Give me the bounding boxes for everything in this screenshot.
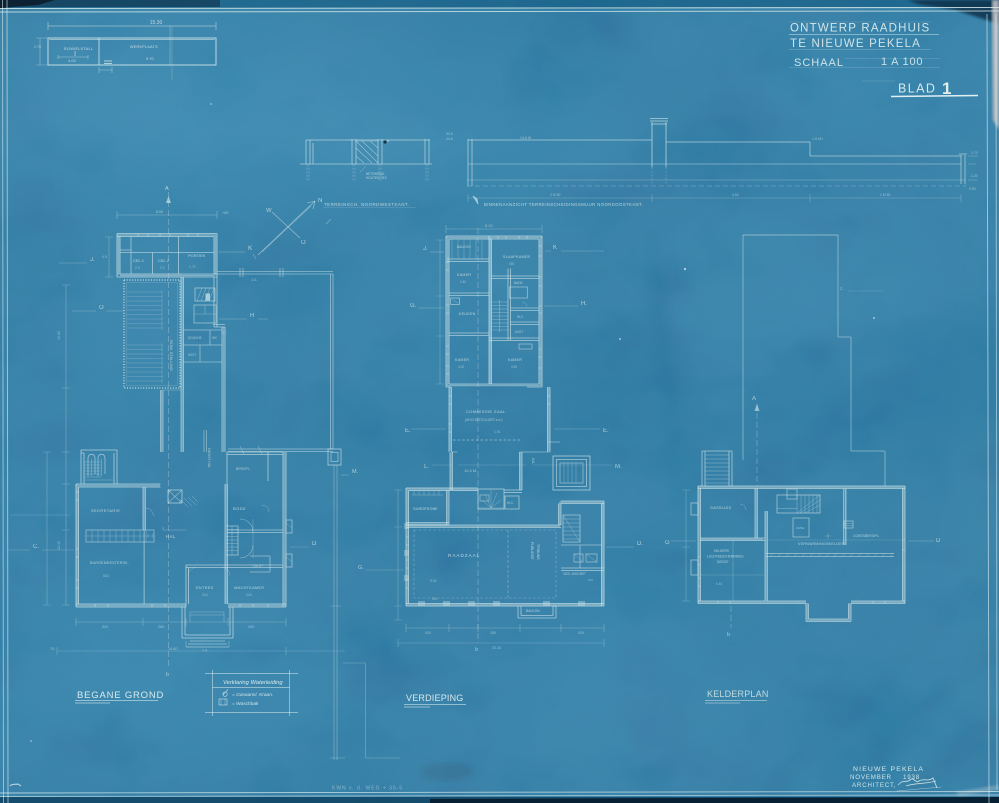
svg-text:14.6 M: 14.6 M: [520, 136, 531, 140]
svg-text:H.: H.: [581, 301, 587, 307]
svg-text:Verklaring Waterleiding: Verklaring Waterleiding: [223, 680, 283, 686]
svg-text:VERWARMINGSKELDER: VERWARMINGSKELDER: [798, 542, 845, 546]
svg-text:SLAAPKAMER: SLAAPKAMER: [503, 255, 530, 259]
svg-text:HAL: HAL: [531, 458, 535, 464]
svg-text:b: b: [166, 672, 169, 678]
svg-text:2.70: 2.70: [34, 45, 41, 49]
svg-text:CEL 2: CEL 2: [158, 258, 170, 263]
svg-text:KELDERS: KELDERS: [714, 549, 729, 553]
svg-text:70-: 70-: [50, 647, 56, 651]
svg-text:W.C.: W.C.: [517, 315, 524, 319]
svg-text:+86: +86: [222, 211, 228, 215]
svg-text:COMMISSIE ZAAL: COMMISSIE ZAAL: [466, 409, 506, 414]
svg-text:GED. ARCHIEF: GED. ARCHIEF: [563, 572, 586, 576]
svg-text:2 M 50: 2 M 50: [880, 193, 890, 197]
svg-text:A: A: [165, 186, 169, 192]
svg-text:2.0: 2.0: [135, 266, 140, 270]
svg-text:J.: J.: [90, 257, 95, 263]
svg-text:280: 280: [158, 625, 164, 629]
svg-text:RAADZAAL: RAADZAAL: [448, 553, 480, 558]
svg-text:NOVEMBER: NOVEMBER: [850, 774, 892, 781]
svg-text:KAMER: KAMER: [508, 358, 522, 362]
svg-text:9.70: 9.70: [146, 56, 155, 61]
svg-text:10.80: 10.80: [57, 331, 61, 340]
svg-text:BEGANE GROND: BEGANE GROND: [77, 690, 164, 701]
svg-text:20.16: 20.16: [492, 646, 501, 650]
svg-text:KAST: KAST: [188, 353, 196, 357]
svg-text:4.02: 4.02: [458, 365, 464, 369]
svg-text:15.30: 15.30: [150, 20, 163, 26]
svg-text:D: D: [312, 541, 317, 547]
svg-text:PORTIEK: PORTIEK: [188, 253, 206, 258]
svg-text:KAMER: KAMER: [457, 273, 471, 277]
svg-text:27-: 27-: [222, 331, 228, 335]
svg-text:BADK.: BADK.: [514, 281, 524, 285]
svg-text:10.4 M.: 10.4 M.: [464, 468, 477, 473]
svg-text:504: 504: [102, 625, 108, 629]
svg-text:KWN v. d. WEG + 35-5: KWN v. d. WEG + 35-5: [332, 786, 403, 792]
svg-text:1.20: 1.20: [971, 174, 978, 178]
svg-text:BURGEMEESTERSK.: BURGEMEESTERSK.: [90, 561, 129, 565]
svg-text:BERGPL.: BERGPL.: [236, 467, 251, 471]
svg-text:PUBLIEKE: PUBLIEKE: [530, 542, 534, 560]
svg-text:DIENST: DIENST: [717, 560, 729, 564]
svg-text:b: b: [727, 632, 730, 638]
svg-text:WACHTKAMER: WACHTKAMER: [234, 586, 264, 590]
svg-text:BLAD: BLAD: [898, 82, 936, 96]
svg-text:8.00: 8.00: [485, 223, 494, 228]
svg-text:240: 240: [588, 578, 593, 582]
svg-text:DIENST HAL: DIENST HAL: [207, 448, 211, 468]
svg-text:2.9-: 2.9-: [202, 649, 209, 653]
svg-text:ENTREE: ENTREE: [196, 586, 214, 590]
svg-text:ONTWERP RAADHUIS: ONTWERP RAADHUIS: [790, 23, 930, 35]
svg-text:8.00: 8.00: [156, 210, 163, 214]
svg-text:9.04: 9.04: [430, 579, 437, 583]
svg-text:5.46: 5.46: [716, 582, 722, 586]
svg-text:= Waschbak: = Waschbak: [232, 701, 259, 707]
svg-text:HOUTEN HEK: HOUTEN HEK: [366, 176, 388, 180]
svg-text:2 M 50: 2 M 50: [550, 193, 560, 197]
svg-text:TERREINSCH. NOORDWESTKANT.: TERREINSCH. NOORDWESTKANT.: [324, 202, 409, 207]
svg-text:1.71: 1.71: [189, 265, 196, 269]
svg-text:VERDIEPING: VERDIEPING: [406, 693, 464, 703]
svg-text:1 A 100: 1 A 100: [881, 56, 923, 68]
svg-text:HAL: HAL: [166, 534, 176, 539]
svg-text:DOUCHE: DOUCHE: [188, 336, 202, 340]
svg-text:K: K: [553, 245, 557, 251]
svg-text:G: G: [665, 540, 670, 546]
svg-text:214: 214: [202, 593, 208, 597]
svg-text:L.: L.: [424, 464, 429, 470]
svg-text:H: H: [250, 313, 254, 319]
svg-text:1.91: 1.91: [494, 430, 501, 434]
svg-text:D: D: [936, 538, 941, 544]
svg-text:1938: 1938: [903, 774, 920, 781]
svg-text:G.: G.: [358, 565, 364, 571]
svg-text:WC: WC: [212, 336, 218, 340]
svg-text:502: 502: [103, 574, 109, 578]
svg-text:c.: c.: [840, 286, 844, 292]
svg-text:CEL 1: CEL 1: [133, 258, 145, 263]
svg-text:KAMER: KAMER: [455, 358, 469, 362]
svg-text:KELDERPLAN: KELDERPLAN: [707, 689, 769, 699]
svg-text:= Gasaansl. Kraan.: = Gasaansl. Kraan.: [232, 692, 273, 698]
svg-text:SECRETARIE: SECRETARIE: [91, 508, 120, 513]
svg-text:495: 495: [248, 625, 254, 629]
svg-text:G.: G.: [410, 303, 417, 309]
svg-text:0.50: 0.50: [969, 187, 976, 191]
svg-text:W.C.: W.C.: [507, 501, 514, 505]
svg-text:TE NIEUWE PEKELA: TE NIEUWE PEKELA: [790, 38, 921, 50]
svg-text:TRIBUNE: TRIBUNE: [536, 544, 540, 560]
svg-text:4.5: 4.5: [102, 255, 107, 259]
svg-text:M.: M.: [352, 469, 359, 475]
svg-text:34.6: 34.6: [446, 132, 453, 136]
svg-text:355: 355: [490, 631, 496, 635]
svg-text:BALKON: BALKON: [457, 245, 471, 249]
svg-text:GASSLUIS: GASSLUIS: [710, 506, 732, 510]
svg-text:b: b: [475, 647, 478, 653]
svg-text:340: 340: [509, 262, 515, 266]
svg-text:C.: C.: [33, 544, 39, 550]
svg-text:KEUKEN: KEUKEN: [459, 312, 476, 316]
svg-text:434: 434: [425, 631, 431, 635]
svg-text:M.: M.: [615, 464, 622, 470]
svg-text:BODE: BODE: [233, 506, 246, 511]
svg-text:14.80: 14.80: [168, 647, 178, 651]
svg-text:2.1: 2.1: [160, 266, 165, 270]
svg-text:1.5 M+: 1.5 M+: [812, 137, 823, 141]
svg-text:12.40: 12.40: [57, 541, 61, 550]
svg-text:3.6-: 3.6-: [251, 278, 258, 282]
svg-text:1.70: 1.70: [971, 151, 978, 155]
svg-text:BINNENAANZICHT TERREINSCHEIDI: BINNENAANZICHT TERREINSCHEIDINGSMUUR NOO…: [484, 202, 643, 207]
svg-text:D.: D.: [637, 541, 643, 547]
svg-text:O: O: [301, 240, 306, 246]
svg-text:4.50: 4.50: [732, 193, 739, 197]
svg-text:E.: E.: [603, 428, 609, 434]
svg-text:N: N: [318, 198, 322, 204]
svg-text:A: A: [752, 396, 756, 402]
svg-text:WERKPLAATS: WERKPLAATS: [130, 45, 158, 49]
svg-text:424: 424: [578, 631, 584, 635]
svg-text:E.: E.: [405, 428, 411, 434]
svg-text:LUCHTBESCHERMINGS: LUCHTBESCHERMINGS: [707, 555, 743, 559]
svg-text:SCHAAL: SCHAAL: [794, 57, 844, 69]
svg-text:KAST: KAST: [515, 330, 523, 334]
svg-text:W: W: [266, 208, 272, 214]
svg-text:GARDEROBE: GARDEROBE: [413, 507, 438, 511]
svg-text:RIJWIELSTALL.: RIJWIELSTALL.: [64, 47, 94, 51]
svg-text:3.40: 3.40: [460, 280, 466, 284]
svg-text:O: O: [99, 305, 104, 311]
svg-text:RIJW. STALLING: RIJW. STALLING: [169, 340, 174, 371]
svg-text:3.60: 3.60: [511, 365, 517, 369]
svg-text:(ARCHIEFZOLDER e.d.): (ARCHIEFZOLDER e.d.): [465, 418, 503, 422]
svg-text:J.: J.: [423, 246, 428, 252]
svg-text:K: K: [248, 245, 253, 252]
svg-text:4.00: 4.00: [68, 58, 77, 63]
svg-text:KETEL: KETEL: [796, 526, 805, 530]
svg-text:884: 884: [432, 597, 438, 601]
svg-text:COKESBERGPL.: COKESBERGPL.: [853, 534, 880, 538]
svg-text:NIEUWE PEKELA: NIEUWE PEKELA: [853, 766, 924, 773]
svg-text:ARCHITECT,: ARCHITECT,: [852, 782, 896, 789]
svg-text:BALKON: BALKON: [526, 609, 540, 613]
svg-text:44.6: 44.6: [446, 137, 453, 141]
svg-text:240: 240: [246, 593, 252, 597]
